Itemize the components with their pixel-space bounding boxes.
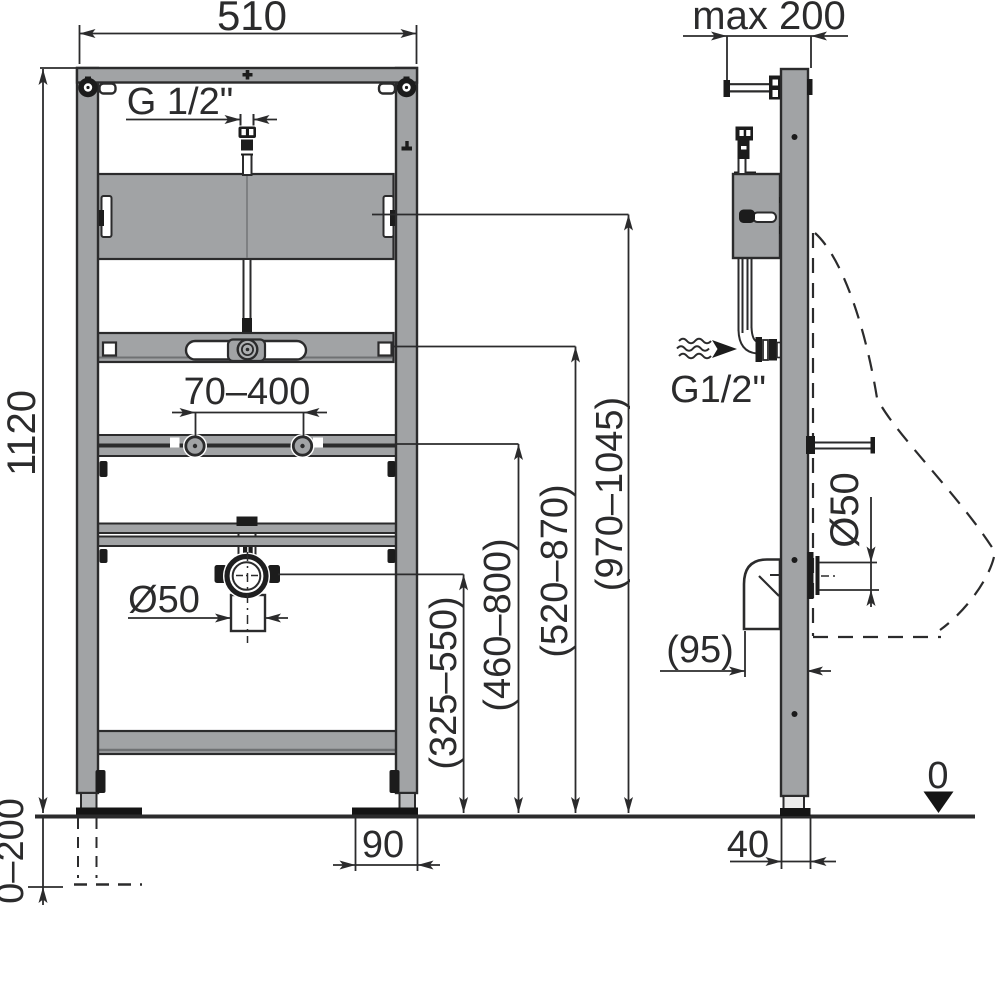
- svg-text:0–200: 0–200: [0, 798, 32, 904]
- svg-text:(970–1045): (970–1045): [589, 397, 631, 591]
- svg-text:Ø50: Ø50: [823, 472, 867, 548]
- svg-text:0: 0: [927, 755, 948, 797]
- svg-text:1120: 1120: [0, 390, 44, 476]
- svg-text:G1/2": G1/2": [670, 369, 766, 411]
- svg-text:(95): (95): [666, 629, 734, 671]
- svg-text:90: 90: [362, 824, 404, 866]
- svg-text:(520–870): (520–870): [534, 484, 576, 657]
- svg-text:G 1/2": G 1/2": [127, 81, 233, 123]
- svg-text:Ø50: Ø50: [128, 579, 200, 621]
- svg-text:(460–800): (460–800): [477, 538, 519, 711]
- svg-text:70–400: 70–400: [184, 371, 311, 413]
- svg-text:(325–550): (325–550): [423, 596, 465, 769]
- svg-text:510: 510: [217, 0, 287, 39]
- svg-text:40: 40: [727, 824, 769, 866]
- svg-text:max 200: max 200: [692, 0, 845, 38]
